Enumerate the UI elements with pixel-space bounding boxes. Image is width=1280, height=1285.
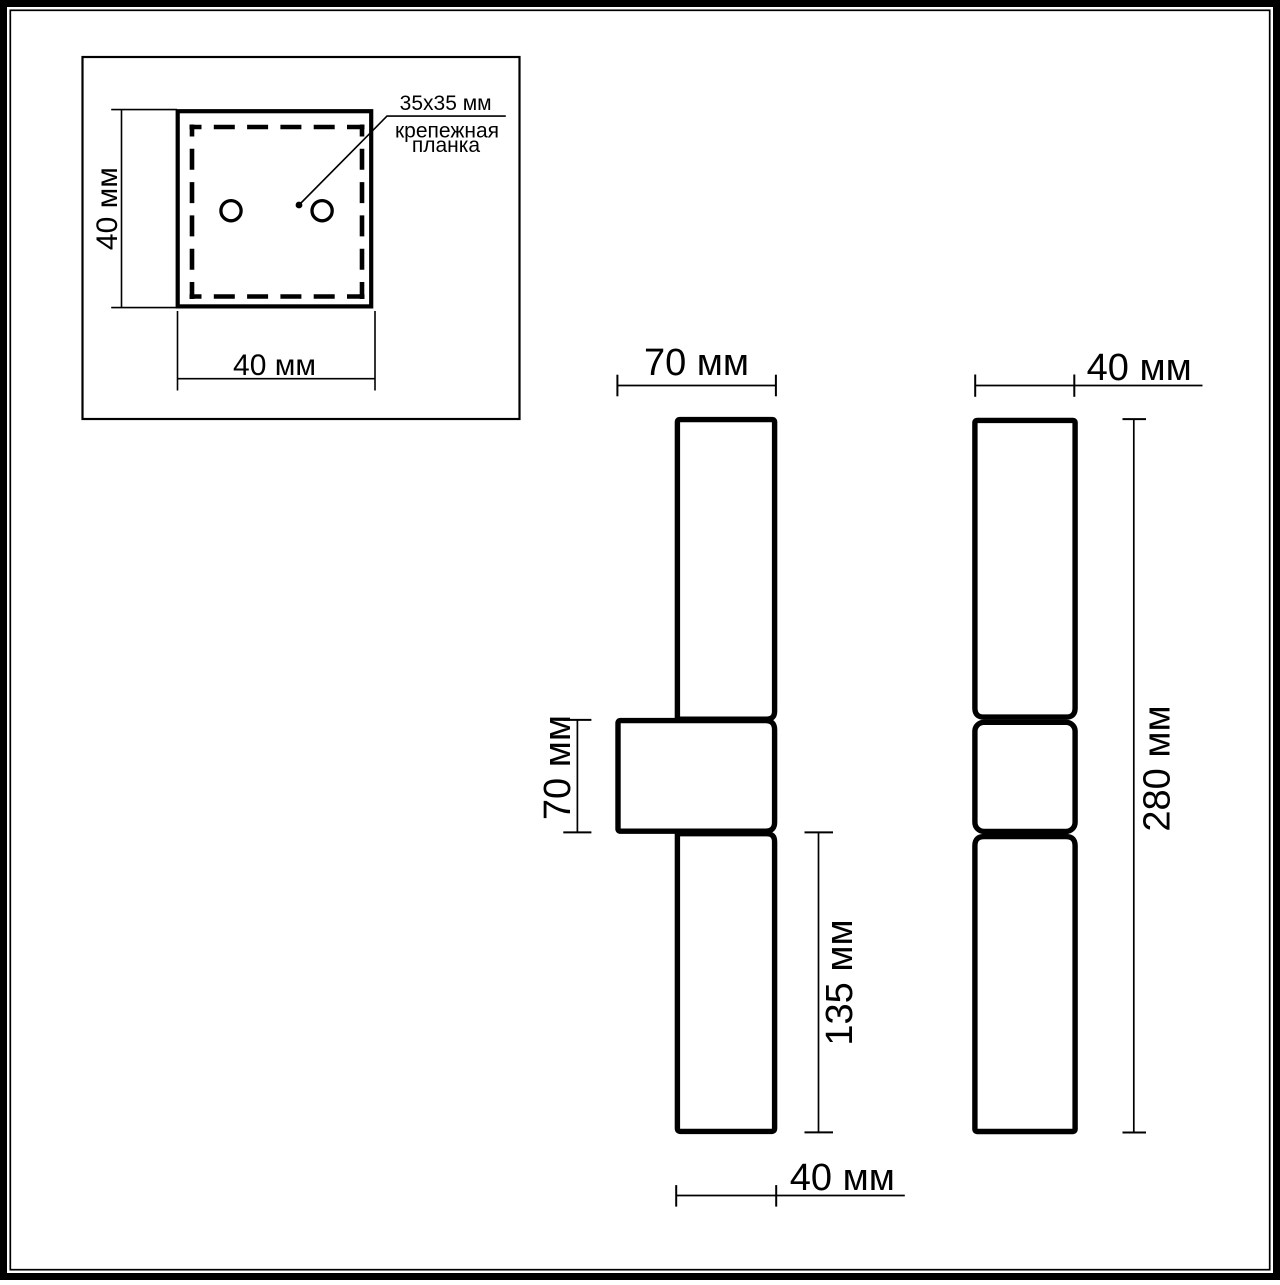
svg-text:40 мм: 40 мм [1087, 347, 1192, 389]
svg-text:40 мм: 40 мм [790, 1157, 895, 1199]
svg-text:планка: планка [412, 134, 481, 157]
svg-text:280 мм: 280 мм [1137, 705, 1179, 831]
svg-text:35x35 мм: 35x35 мм [400, 92, 492, 115]
svg-text:40 мм: 40 мм [91, 167, 124, 250]
svg-text:70 мм: 70 мм [644, 342, 749, 384]
svg-text:70 мм: 70 мм [537, 715, 579, 820]
svg-text:40 мм: 40 мм [233, 349, 316, 382]
svg-text:135 мм: 135 мм [819, 919, 861, 1045]
